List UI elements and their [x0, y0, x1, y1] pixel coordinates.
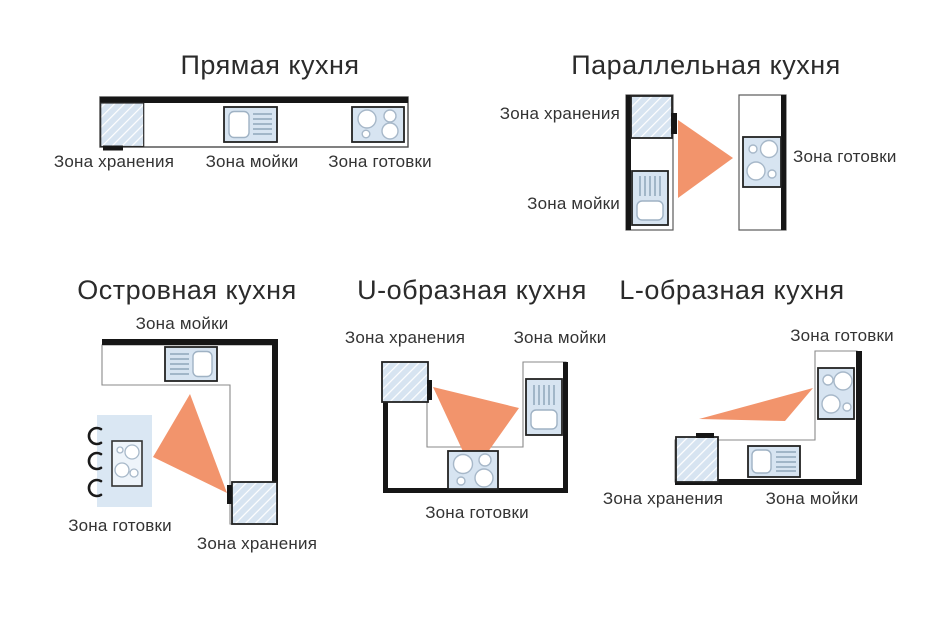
wall-right: [563, 362, 568, 493]
wall-right: [856, 351, 862, 485]
title-parallel-kitchen: Параллельная кухня: [556, 50, 856, 81]
wall-top: [100, 97, 408, 103]
cooktop-icon: [448, 451, 498, 489]
label-cooking-zone: Зона готовки: [793, 147, 940, 167]
wall-top: [102, 339, 278, 345]
label-cooking-zone: Зона готовки: [40, 516, 200, 536]
cabinet-handle: [696, 433, 714, 438]
parallel-kitchen-plan: [618, 90, 818, 240]
label-sink-zone: Зона мойки: [480, 328, 640, 348]
cooktop-icon: [818, 368, 854, 419]
cabinet-handle: [103, 146, 123, 151]
cabinet-handle: [227, 485, 232, 504]
wall-left: [383, 402, 388, 493]
title-island-kitchen: Островная кухня: [37, 275, 337, 306]
label-sink-zone: Зона мойки: [732, 489, 892, 509]
label-storage-zone: Зона хранения: [583, 489, 743, 509]
sink-icon: [632, 171, 668, 225]
label-storage-zone: Зона хранения: [460, 104, 620, 124]
label-cooking-zone: Зона готовки: [762, 326, 922, 346]
work-triangle-icon: [678, 120, 733, 198]
cooktop-icon: [743, 137, 781, 187]
title-l-shaped-kitchen: L-образная кухня: [582, 275, 882, 306]
work-triangle-icon: [699, 388, 813, 421]
u-shaped-kitchen-plan: [340, 352, 580, 502]
label-sink-zone: Зона мойки: [460, 194, 620, 214]
cabinet-handle: [671, 113, 677, 134]
straight-kitchen-plan: [90, 88, 415, 158]
storage-hatch-icon: [232, 482, 277, 524]
sink-icon: [526, 379, 562, 435]
label-storage-zone: Зона хранения: [177, 534, 337, 554]
storage-hatch-icon: [382, 362, 428, 402]
sink-icon: [165, 347, 217, 381]
sink-icon: [224, 107, 277, 142]
sink-icon: [748, 446, 800, 477]
label-storage-zone: Зона хранения: [34, 152, 194, 172]
l-shaped-kitchen-plan: [598, 348, 878, 493]
title-u-shaped-kitchen: U-образная кухня: [322, 275, 622, 306]
storage-hatch-icon: [101, 103, 144, 147]
work-triangle-icon: [153, 394, 227, 493]
cooktop-icon: [352, 107, 404, 142]
label-storage-zone: Зона хранения: [325, 328, 485, 348]
storage-hatch-icon: [676, 437, 718, 482]
label-cooking-zone: Зона готовки: [397, 503, 557, 523]
kitchen-layouts-infographic: Прямая кухня Зона: [0, 0, 940, 627]
label-cooking-zone: Зона готовки: [300, 152, 460, 172]
cabinet-handle: [427, 380, 432, 400]
title-straight-kitchen: Прямая кухня: [120, 50, 420, 81]
storage-hatch-icon: [631, 96, 672, 138]
label-sink-zone: Зона мойки: [102, 314, 262, 334]
cooktop-icon: [112, 441, 142, 486]
